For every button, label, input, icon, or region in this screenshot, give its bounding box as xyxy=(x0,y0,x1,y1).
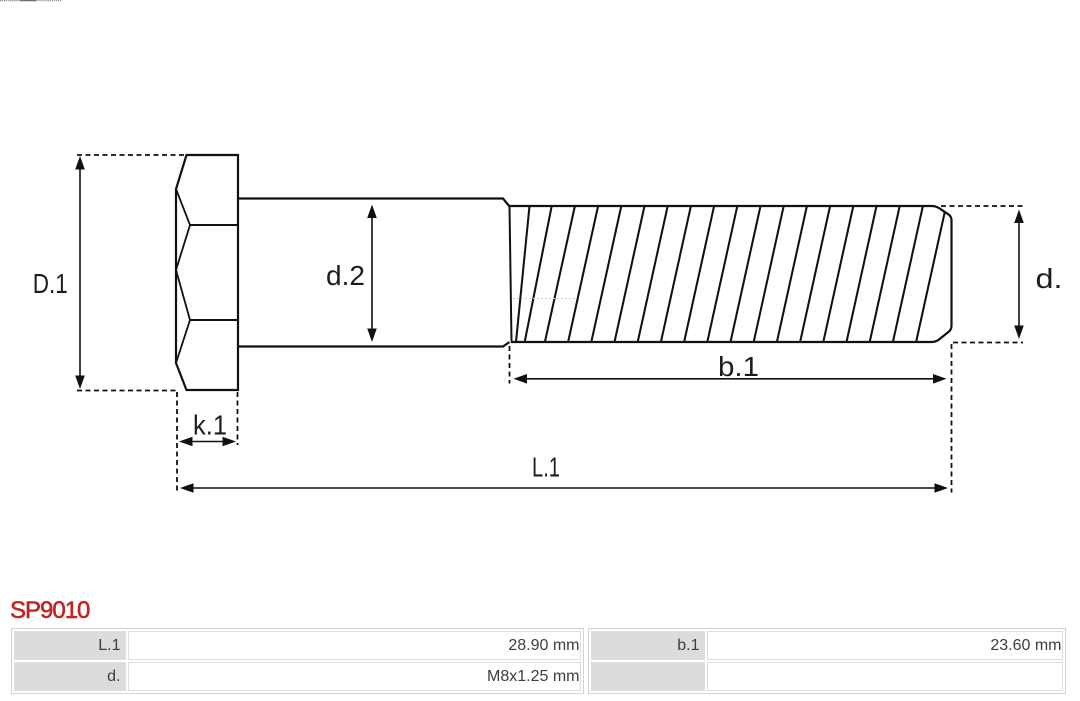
svg-text:k.1: k.1 xyxy=(193,410,227,441)
svg-text:b.1: b.1 xyxy=(718,351,759,382)
svg-text:D.1: D.1 xyxy=(33,268,68,299)
svg-text:d.: d. xyxy=(1036,263,1063,294)
svg-text:d.2: d.2 xyxy=(326,260,365,291)
svg-text:L.1: L.1 xyxy=(532,452,560,483)
